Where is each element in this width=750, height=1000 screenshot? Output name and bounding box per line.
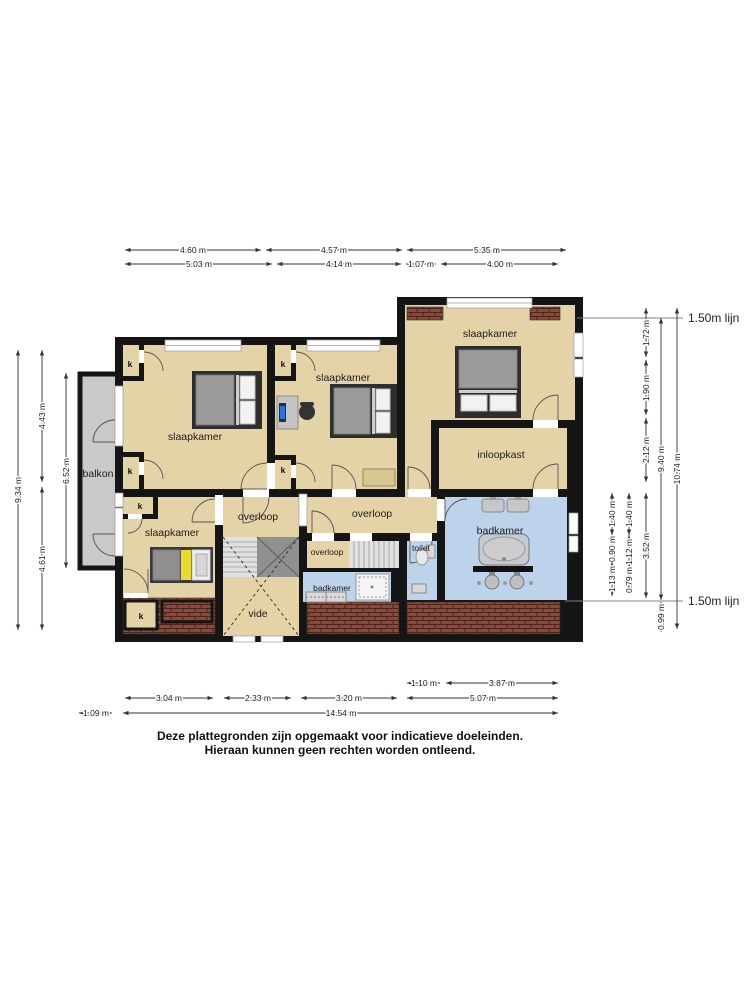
dim-label: 1.72 m: [641, 320, 651, 346]
dim-label: 0.79 m: [624, 567, 634, 593]
label-k4: k: [281, 465, 286, 475]
label-k5: k: [138, 501, 143, 511]
dim-right: 1.40 m 0.90 m 1.13 m 1.40 m 1.12 m 0.79 …: [607, 308, 682, 632]
dim-label: 1.90 m: [641, 375, 651, 401]
dim-label: 5.07 m: [470, 693, 496, 703]
dim-label: 14.54 m: [326, 708, 357, 718]
dim-label: 6.52 m: [61, 458, 71, 484]
label-balkon: balkon: [83, 468, 114, 480]
label-toilet: toilet: [412, 543, 431, 553]
label-overloop-small: overloop: [311, 547, 344, 557]
stairwell-dark-icon: [257, 537, 299, 577]
disclaimer: Deze plattegronden zijn opgemaakt voor i…: [157, 729, 523, 757]
reference-line-top: 1.50m lijn: [577, 311, 739, 325]
dim-label: 3.04 m: [156, 693, 182, 703]
label-overloop-left: overloop: [238, 511, 278, 523]
label-k2: k: [281, 359, 286, 369]
dim-label: 4.61 m: [37, 546, 47, 572]
dim-label: 1.40 m: [607, 501, 617, 527]
dim-label: 4.43 m: [37, 403, 47, 429]
label-badkamer-big: badkamer: [477, 525, 524, 537]
label-150-lijn-top: 1.50m lijn: [688, 311, 739, 325]
dim-label: 1.40 m: [624, 501, 634, 527]
dim-label: 5.35 m: [474, 245, 500, 255]
reference-line-bottom: 1.50m lijn: [565, 594, 739, 608]
washbasin-icon: [306, 592, 346, 602]
room-slaapkamer-3-corridor: [405, 420, 431, 497]
disclaimer-line1: Deze plattegronden zijn opgemaakt voor i…: [157, 729, 523, 743]
dim-bottom-row1: 1.10 m 3.87 m: [407, 678, 558, 688]
label-overloop-mid: overloop: [352, 508, 392, 520]
bed-icon-slaapkamer-3: [455, 346, 521, 418]
label-150-lijn-bottom: 1.50m lijn: [688, 594, 739, 608]
dim-bottom-row3: 1.09 m 14.54 m: [79, 708, 558, 718]
label-slaapkamer-2: slaapkamer: [316, 372, 371, 384]
dim-label: 9.34 m: [13, 477, 23, 503]
stairs-down-icon: [349, 541, 399, 568]
dim-label: 4.00 m: [487, 259, 513, 269]
label-k6: k: [139, 611, 144, 621]
floorplan-image: slaapkamer slaapkamer slaapkamer slaapka…: [0, 0, 750, 1000]
dim-label: 2.12 m: [641, 437, 651, 463]
bed-icon-slaapkamer-4: [150, 547, 213, 583]
dim-label: 1.07 m: [408, 259, 434, 269]
floorplan-page: slaapkamer slaapkamer slaapkamer slaapka…: [0, 0, 750, 1000]
dim-label: 1.10 m: [411, 678, 437, 688]
dim-bottom-row2: 3.04 m 2.33 m 3.20 m 5.07 m: [125, 693, 558, 703]
dim-label: 10.74 m: [672, 454, 682, 485]
dim-label: 0.99 m: [656, 604, 666, 630]
bed-icon-slaapkamer-2: [330, 384, 397, 438]
dim-label: 4.14 m: [326, 259, 352, 269]
disclaimer-line2: Hieraan kunnen geen rechten worden ontle…: [205, 743, 476, 757]
label-vide: vide: [248, 608, 267, 620]
dim-label: 4.57 m: [321, 245, 347, 255]
label-slaapkamer-1: slaapkamer: [168, 431, 223, 443]
dim-label: 1.09 m: [83, 708, 109, 718]
dim-label: 4.60 m: [180, 245, 206, 255]
label-slaapkamer-4: slaapkamer: [145, 527, 200, 539]
dim-label: 3.20 m: [336, 693, 362, 703]
dim-label: 0.90 m: [607, 536, 617, 562]
dim-label: 2.33 m: [245, 693, 271, 703]
label-inloopkast: inloopkast: [477, 449, 524, 461]
dim-label: 5.03 m: [186, 259, 212, 269]
bed-icon-slaapkamer-1: [192, 371, 262, 429]
dim-top-row2: 5.03 m 4.14 m 1.07 m 4.00 m: [125, 259, 558, 269]
label-k3: k: [128, 466, 133, 476]
shower-icon: [356, 574, 389, 600]
dim-top-row1: 4.60 m 4.57 m 5.35 m: [125, 245, 566, 255]
dresser-icon: [363, 469, 395, 486]
dim-left: 9.34 m 4.43 m 4.61 m 6.52 m: [13, 350, 71, 630]
dim-label: 1.12 m: [624, 539, 634, 565]
bathtub-icon: [479, 534, 529, 565]
label-badkamer-small: badkamer: [313, 583, 351, 593]
label-k1: k: [128, 359, 133, 369]
dim-label: 3.52 m: [641, 533, 651, 559]
dim-label: 1.13 m: [607, 566, 617, 592]
label-slaapkamer-3: slaapkamer: [463, 328, 518, 340]
dim-label: 9.40 m: [656, 446, 666, 472]
dim-label: 3.87 m: [489, 678, 515, 688]
